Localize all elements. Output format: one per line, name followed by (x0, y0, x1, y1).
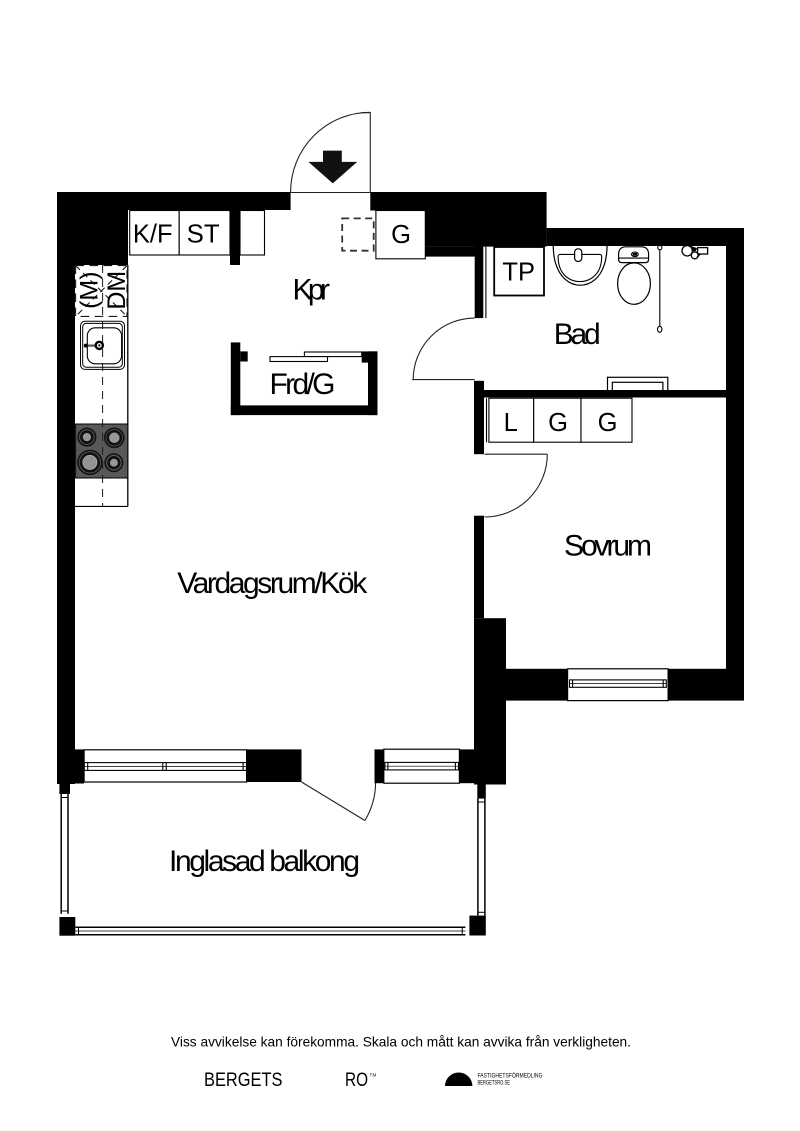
svg-text:Bad: Bad (554, 318, 601, 351)
svg-text:Frd/G: Frd/G (270, 368, 336, 401)
svg-text:TM: TM (370, 1073, 377, 1078)
svg-text:Vardagsrum/Kök: Vardagsrum/Kök (177, 567, 368, 600)
svg-text:K/F: K/F (133, 221, 173, 249)
svg-text:DM: DM (103, 271, 131, 310)
svg-text:Inglasad balkong: Inglasad balkong (169, 845, 360, 878)
svg-text:G: G (598, 409, 618, 437)
svg-text:BERGETS: BERGETS (204, 1070, 283, 1091)
svg-text:G: G (391, 221, 411, 249)
svg-text:RO: RO (345, 1070, 368, 1091)
svg-text:Sovrum: Sovrum (564, 530, 652, 563)
svg-text:ST: ST (187, 221, 220, 249)
svg-text:(M): (M) (75, 271, 103, 308)
svg-text:G: G (548, 409, 568, 437)
svg-text:BERGETSRO.SE: BERGETSRO.SE (478, 1080, 511, 1087)
svg-text:FASTIGHETSFÖRMEDLING: FASTIGHETSFÖRMEDLING (478, 1072, 543, 1080)
svg-text:Viss avvikelse kan förekomma.: Viss avvikelse kan förekomma. Skala och … (171, 1035, 631, 1050)
svg-text:TP: TP (502, 259, 535, 287)
svg-text:Kpr: Kpr (292, 274, 330, 307)
svg-text:L: L (504, 409, 518, 437)
